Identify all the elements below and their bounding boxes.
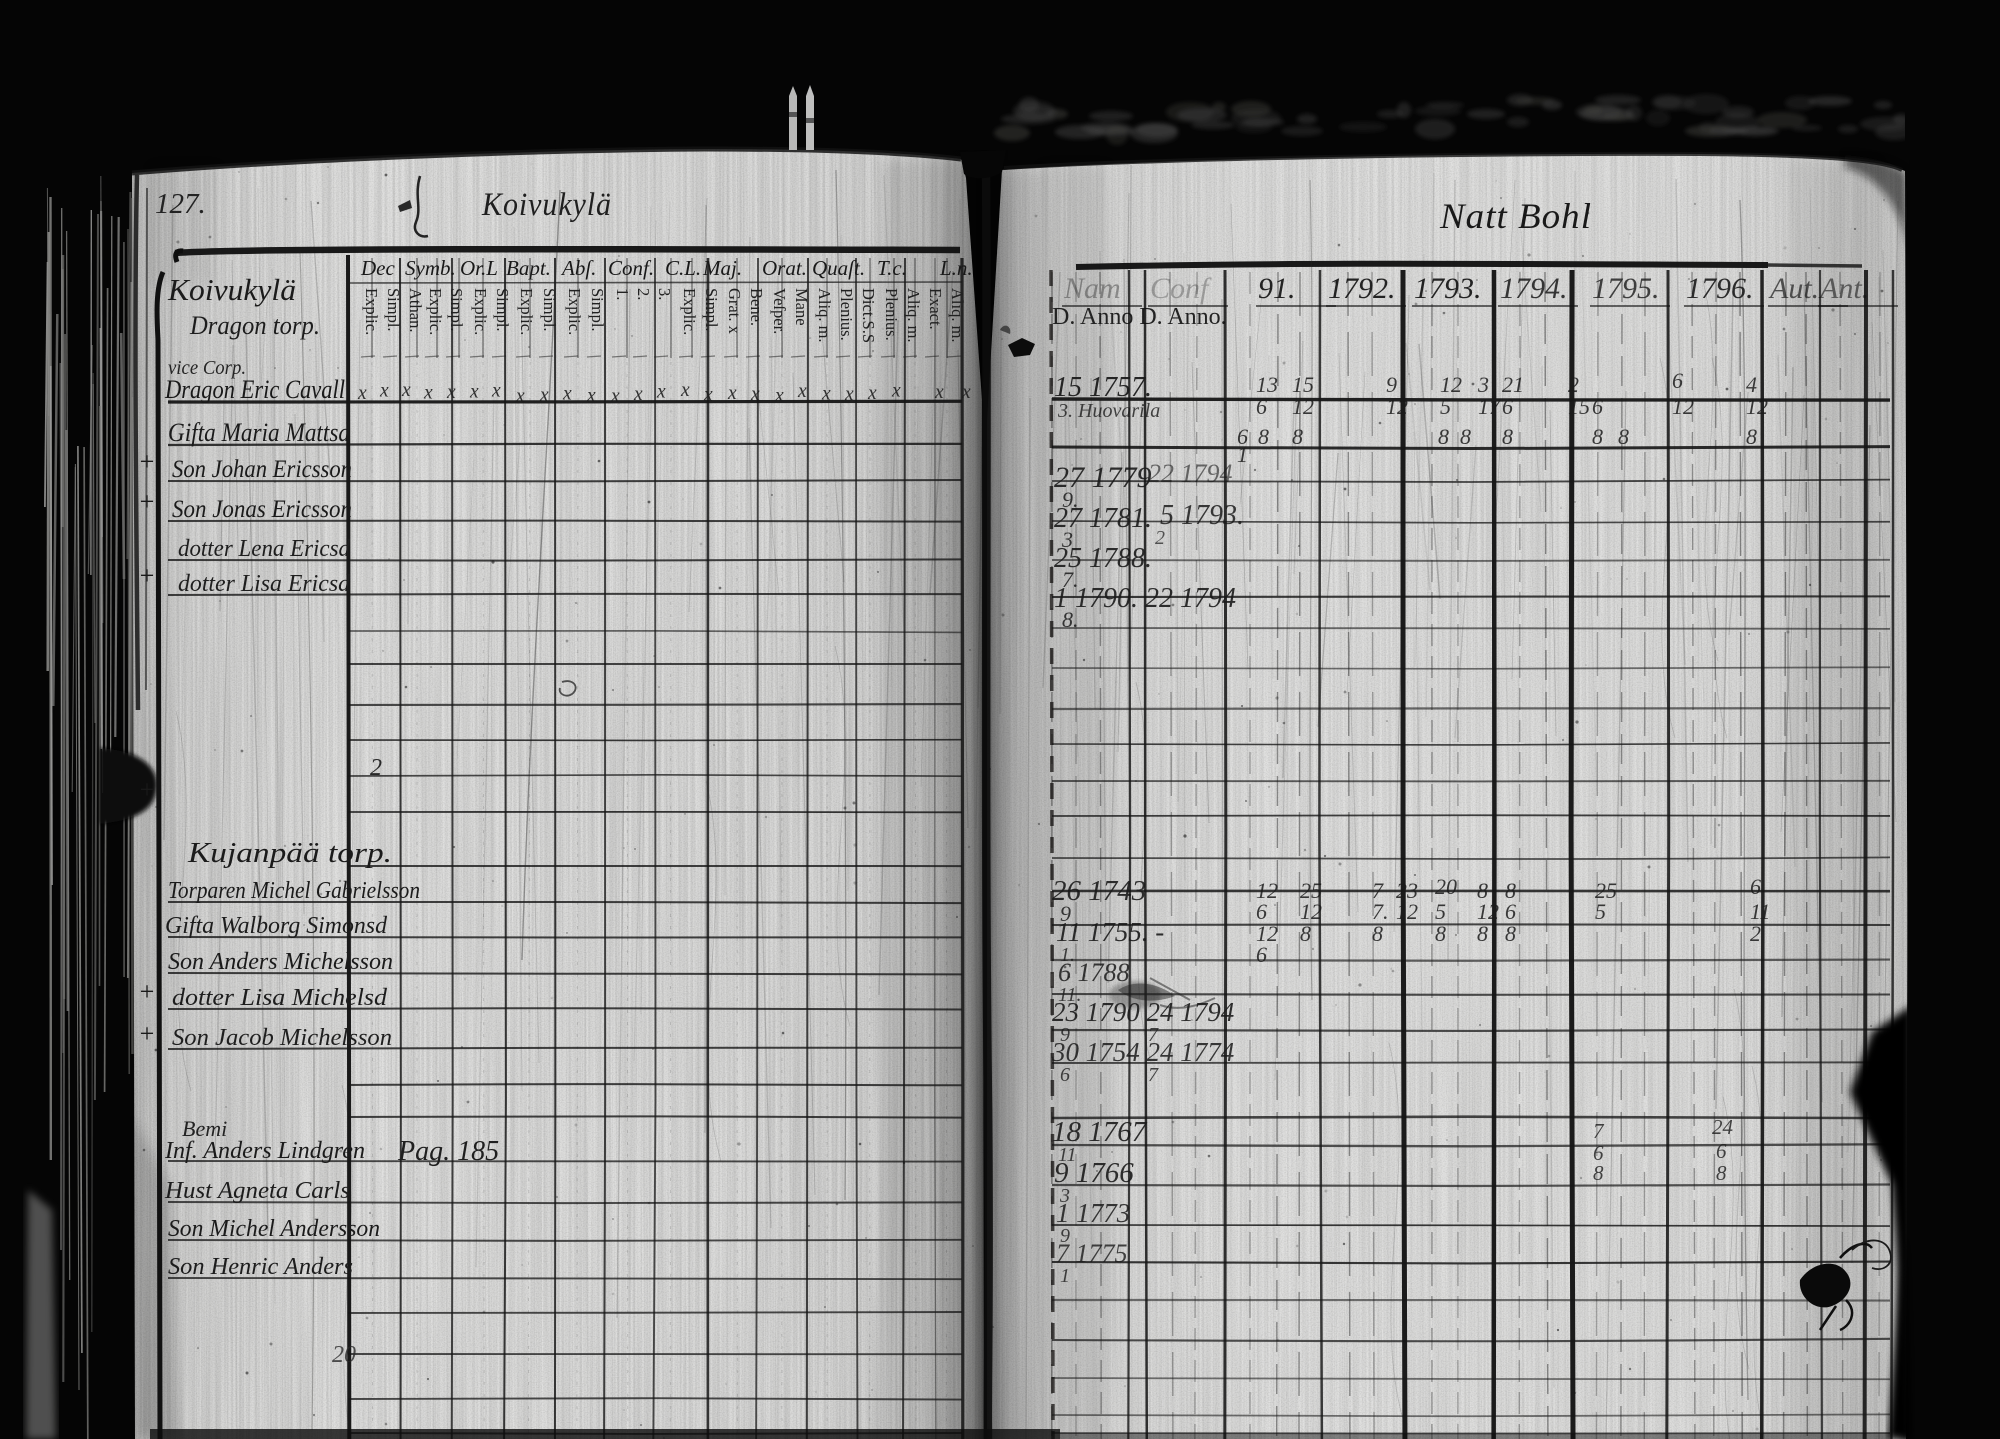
svg-text:Son Jacob Michelsson: Son Jacob Michelsson xyxy=(172,1025,392,1051)
svg-text:dotter Lena Ericsd: dotter Lena Ericsd xyxy=(178,536,351,562)
svg-text:6: 6 xyxy=(1256,942,1267,967)
svg-text:Koivukylä: Koivukylä xyxy=(481,187,612,223)
svg-text:12: 12 xyxy=(1396,899,1418,924)
svg-text:2: 2 xyxy=(1750,921,1761,946)
svg-text:Maj.: Maj. xyxy=(702,256,742,280)
svg-text:x: x xyxy=(656,382,666,403)
svg-text:8: 8 xyxy=(1593,1161,1604,1185)
svg-text:6: 6 xyxy=(1060,1064,1070,1086)
svg-text:+: + xyxy=(138,447,156,476)
svg-text:8: 8 xyxy=(1716,1161,1727,1185)
svg-text:Explic.: Explic. xyxy=(517,288,536,335)
svg-text:12: 12 xyxy=(1386,394,1408,419)
svg-text:15: 15 xyxy=(1568,394,1590,419)
svg-text:3.: 3. xyxy=(655,288,674,300)
svg-text:x: x xyxy=(774,385,784,406)
svg-text:x: x xyxy=(934,382,944,403)
svg-text:6: 6 xyxy=(1502,394,1513,419)
svg-text:Aliq. m.: Aliq. m. xyxy=(904,288,923,343)
svg-text:20: 20 xyxy=(1435,874,1457,899)
svg-text:Simpl.: Simpl. xyxy=(702,288,721,332)
svg-text:Aut.: Aut. xyxy=(1768,272,1819,305)
svg-text:x: x xyxy=(539,385,549,406)
svg-text:Veſper.: Veſper. xyxy=(770,288,789,334)
svg-text:Son Jonas Ericsson: Son Jonas Ericsson xyxy=(172,496,352,523)
svg-text:x: x xyxy=(633,384,643,405)
svg-text:7: 7 xyxy=(1148,1064,1159,1086)
svg-text:8: 8 xyxy=(1477,921,1488,946)
svg-text:8: 8 xyxy=(1258,424,1269,449)
svg-text:+: + xyxy=(138,561,156,590)
svg-text:Gifta Maria Mattsd: Gifta Maria Mattsd xyxy=(168,418,351,447)
svg-text:Symb.: Symb. xyxy=(405,256,456,280)
svg-text:Son Anders Michelsson: Son Anders Michelsson xyxy=(168,949,393,975)
svg-text:x: x xyxy=(821,384,831,405)
svg-text:127.: 127. xyxy=(155,188,206,220)
svg-text:Simpl.: Simpl. xyxy=(588,288,607,332)
svg-text:C.L.: C.L. xyxy=(665,256,701,280)
svg-text:Dragon torp.: Dragon torp. xyxy=(189,311,320,340)
svg-text:Aliq. m.: Aliq. m. xyxy=(815,288,834,343)
svg-text:x: x xyxy=(961,382,971,403)
svg-text:+: + xyxy=(138,487,156,516)
svg-text:1 1773: 1 1773 xyxy=(1056,1198,1130,1228)
svg-text:x: x xyxy=(423,383,433,404)
svg-text:Koivukylä: Koivukylä xyxy=(167,272,296,307)
svg-text:Simpl.: Simpl. xyxy=(540,288,559,332)
svg-text:Or.L: Or.L xyxy=(460,256,498,280)
svg-text:x: x xyxy=(797,381,807,402)
svg-text:Explic.: Explic. xyxy=(565,288,584,335)
svg-text:6 1788: 6 1788 xyxy=(1058,958,1130,987)
svg-text:Grat. x: Grat. x xyxy=(725,288,744,335)
svg-text:Bapt.: Bapt. xyxy=(506,256,551,280)
svg-text:Explic.: Explic. xyxy=(680,288,699,335)
svg-text:6: 6 xyxy=(1716,1139,1727,1163)
svg-text:8: 8 xyxy=(1592,424,1603,449)
svg-text:7: 7 xyxy=(1593,1119,1605,1143)
svg-text:x: x xyxy=(491,381,501,402)
svg-text:T.c.: T.c. xyxy=(877,256,907,280)
svg-text:Conf: Conf xyxy=(1150,272,1212,305)
svg-text:Hust Agneta Carls: Hust Agneta Carls xyxy=(164,1178,350,1204)
svg-text:x: x xyxy=(562,383,572,404)
svg-text:x: x xyxy=(469,382,479,403)
svg-text:Abſ.: Abſ. xyxy=(560,256,596,280)
svg-text:Simpl.: Simpl. xyxy=(447,288,466,332)
svg-text:+: + xyxy=(138,1019,156,1048)
svg-text:12: 12 xyxy=(1746,394,1768,419)
svg-text:Gifta Walborg Simonsd: Gifta Walborg Simonsd xyxy=(165,913,388,939)
svg-text:1792.: 1792. xyxy=(1328,272,1396,305)
svg-text:x: x xyxy=(610,386,620,407)
svg-text:1795.: 1795. xyxy=(1592,272,1660,305)
svg-text:Inf. Anders Lindgren: Inf. Anders Lindgren xyxy=(164,1138,365,1164)
svg-text:x: x xyxy=(586,386,596,407)
svg-text:1: 1 xyxy=(1060,1265,1070,1287)
svg-text:Athan.: Athan. xyxy=(406,288,425,332)
svg-text:Dec: Dec xyxy=(360,256,395,280)
svg-text:x: x xyxy=(703,385,713,406)
svg-text:Ant.: Ant. xyxy=(1818,272,1869,305)
svg-text:8: 8 xyxy=(1300,921,1311,946)
svg-text:+: + xyxy=(138,775,156,804)
svg-text:Nam: Nam xyxy=(1063,272,1121,305)
svg-text:8.: 8. xyxy=(1062,607,1079,632)
svg-text:Natt Bohl: Natt Bohl xyxy=(1439,196,1592,236)
svg-text:6: 6 xyxy=(1750,874,1761,899)
svg-text:5: 5 xyxy=(1440,394,1451,419)
svg-text:Explic.: Explic. xyxy=(471,288,490,335)
svg-text:Orat.: Orat. xyxy=(762,256,807,280)
svg-text:2: 2 xyxy=(370,755,382,781)
svg-text:Mane: Mane xyxy=(792,288,811,326)
svg-text:Bene.: Bene. xyxy=(747,288,766,326)
svg-text:2: 2 xyxy=(1155,527,1165,549)
svg-text:1794.: 1794. xyxy=(1500,272,1568,305)
svg-text:6: 6 xyxy=(1672,368,1683,393)
svg-text:5 1793.: 5 1793. xyxy=(1160,500,1244,531)
svg-text:8: 8 xyxy=(1746,424,1757,449)
svg-text:17: 17 xyxy=(1478,394,1501,419)
svg-text:30 1754 24 1774: 30 1754 24 1774 xyxy=(1051,1037,1234,1067)
svg-text:1.: 1. xyxy=(613,288,632,300)
svg-text:8: 8 xyxy=(1435,921,1446,946)
svg-text:3. Huovarila: 3. Huovarila xyxy=(1057,400,1160,422)
svg-text:x: x xyxy=(446,382,456,403)
svg-text:8: 8 xyxy=(1618,424,1629,449)
svg-text:8: 8 xyxy=(1460,424,1471,449)
svg-text:12: 12 xyxy=(1672,394,1694,419)
svg-text:Conf.: Conf. xyxy=(608,256,654,280)
svg-text:Pag. 185: Pag. 185 xyxy=(397,1136,499,1167)
svg-text:Kujanpää torp.: Kujanpää torp. xyxy=(187,838,392,869)
svg-text:x: x xyxy=(379,380,389,401)
svg-text:Son Henric Anders: Son Henric Anders xyxy=(168,1254,353,1280)
svg-text:8: 8 xyxy=(1438,424,1449,449)
svg-text:x: x xyxy=(727,383,737,404)
svg-text:6: 6 xyxy=(1256,394,1267,419)
svg-text:Explic.: Explic. xyxy=(426,288,445,335)
svg-text:Simpl.: Simpl. xyxy=(384,288,403,332)
svg-text:8: 8 xyxy=(1505,921,1516,946)
svg-text:12: 12 xyxy=(1292,394,1314,419)
svg-text:Torparen Michel Gabrielsson: Torparen Michel Gabrielsson xyxy=(168,878,420,904)
svg-text:+: + xyxy=(138,977,156,1006)
svg-text:22 1794: 22 1794 xyxy=(1148,459,1233,488)
svg-text:Simpl.: Simpl. xyxy=(493,288,512,332)
svg-text:5: 5 xyxy=(1595,899,1606,924)
svg-text:8: 8 xyxy=(1502,424,1513,449)
svg-text:x: x xyxy=(680,380,690,401)
svg-text:6: 6 xyxy=(1592,394,1603,419)
svg-text:L.n.: L.n. xyxy=(939,256,973,280)
svg-text:1 1790. 22 1794: 1 1790. 22 1794 xyxy=(1054,583,1236,614)
svg-text:Dict.S.S: Dict.S.S xyxy=(859,288,878,343)
svg-text:91.: 91. xyxy=(1258,272,1296,305)
svg-text:Explic.: Explic. xyxy=(362,288,381,335)
svg-text:x: x xyxy=(844,384,854,405)
svg-text:8: 8 xyxy=(1372,921,1383,946)
svg-text:D. Anno D. Anno.: D. Anno D. Anno. xyxy=(1052,304,1227,330)
